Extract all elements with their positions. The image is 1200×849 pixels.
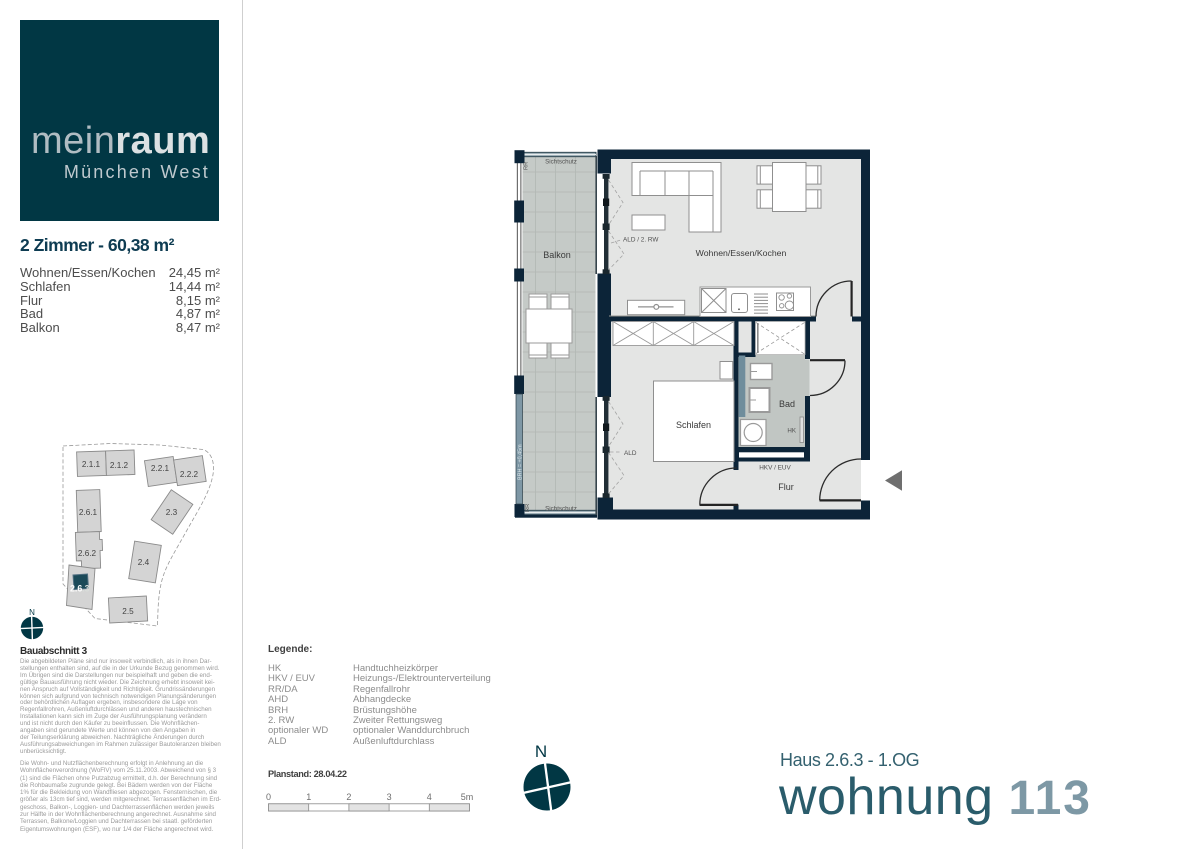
- svg-text:Sichtschutz: Sichtschutz: [545, 506, 577, 513]
- svg-text:ALD / 2. RW: ALD / 2. RW: [623, 237, 659, 244]
- svg-text:2.6.2: 2.6.2: [78, 549, 97, 558]
- svg-text:N: N: [29, 608, 35, 617]
- svg-text:2.2.2: 2.2.2: [180, 470, 199, 479]
- svg-text:5m: 5m: [461, 792, 474, 802]
- svg-text:2.3: 2.3: [166, 508, 178, 517]
- svg-text:Sichtschutz: Sichtschutz: [545, 159, 577, 166]
- svg-text:4: 4: [427, 792, 432, 802]
- svg-text:2.6.1: 2.6.1: [79, 508, 98, 517]
- svg-text:Schlafen: Schlafen: [676, 420, 711, 430]
- svg-text:Flur: Flur: [778, 482, 794, 492]
- svg-text:RR: RR: [525, 504, 531, 512]
- svg-text:1: 1: [306, 792, 311, 802]
- svg-text:RR: RR: [524, 162, 530, 170]
- svg-text:Balkon: Balkon: [543, 250, 571, 260]
- svg-text:2.1.2: 2.1.2: [110, 461, 129, 470]
- svg-text:2.2.1: 2.2.1: [151, 464, 170, 473]
- svg-text:HK: HK: [787, 428, 796, 435]
- svg-text:3: 3: [387, 792, 392, 802]
- svg-text:Wohnen/Essen/Kochen: Wohnen/Essen/Kochen: [696, 248, 787, 258]
- svg-text:ALD: ALD: [624, 450, 637, 457]
- svg-text:2.1.1: 2.1.1: [82, 460, 101, 469]
- svg-text:BRH = +0,45m: BRH = +0,45m: [517, 444, 523, 480]
- svg-text:Bad: Bad: [779, 399, 795, 409]
- svg-text:2.4: 2.4: [138, 558, 150, 567]
- svg-text:2.6.3: 2.6.3: [70, 584, 90, 594]
- svg-text:HKV / EUV: HKV / EUV: [759, 465, 791, 472]
- svg-text:2.5: 2.5: [122, 607, 134, 616]
- svg-text:2: 2: [346, 792, 351, 802]
- svg-text:0: 0: [266, 792, 271, 802]
